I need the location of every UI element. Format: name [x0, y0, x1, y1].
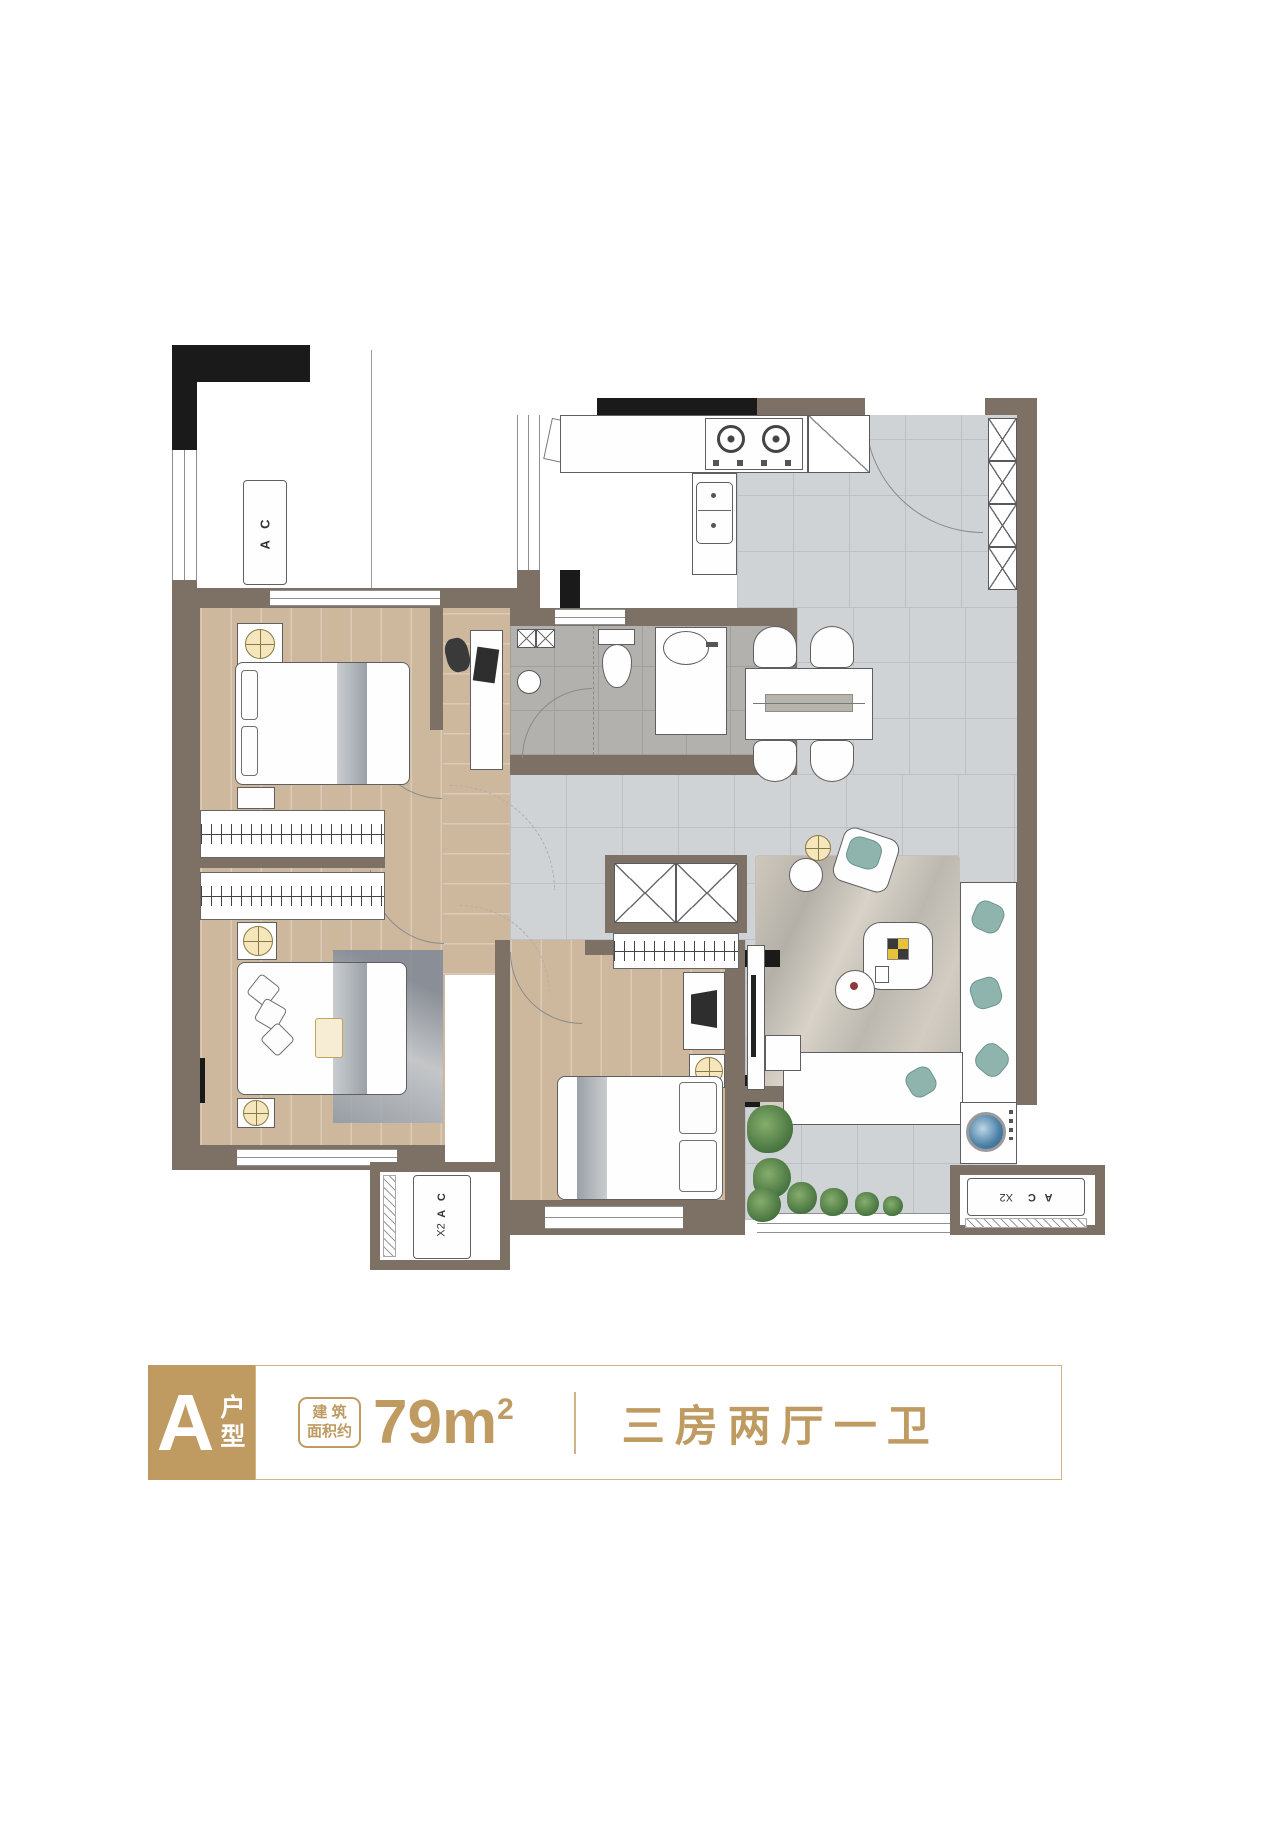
- bedroom1-bed: [235, 662, 410, 785]
- table-runner-line: [753, 703, 865, 704]
- shower-glass-line: [593, 626, 594, 755]
- decor-item: [850, 982, 858, 990]
- bed-blanket-stripe: [337, 663, 367, 784]
- lamp-icon: [243, 1100, 269, 1126]
- pillow: [679, 1140, 717, 1192]
- floor-plan-page: A C: [0, 0, 1280, 1848]
- sink-drain: [711, 493, 716, 498]
- wall: [725, 940, 745, 1235]
- wall: [985, 398, 1037, 415]
- bedroom3-hang-rail: [613, 933, 739, 969]
- washer-drum: [966, 1112, 1006, 1152]
- wall: [510, 608, 797, 626]
- closet-cabinet: [614, 863, 676, 923]
- ac-unit-label: A C: [258, 516, 273, 550]
- toilet-tank: [598, 629, 635, 645]
- ac-label-box: A C X2: [413, 1175, 471, 1259]
- bed-blanket-stripe: [577, 1077, 607, 1199]
- ac-count: X2: [1000, 1191, 1013, 1203]
- lamp-icon: [243, 926, 273, 956]
- wall: [430, 608, 443, 730]
- magazine: [875, 966, 889, 983]
- tv: [751, 975, 756, 1057]
- unit-letter: A: [157, 1383, 215, 1463]
- ac-platform-hatch: [965, 1218, 1087, 1228]
- area-value: 79m: [373, 1388, 497, 1457]
- kitchen-tall-cabinet: [808, 415, 870, 473]
- bedroom1-wardrobe: [200, 810, 385, 858]
- wall: [200, 858, 385, 868]
- bath-cabinet: [517, 629, 536, 648]
- window: [270, 590, 440, 606]
- area-prefix-badge: 建 筑 面积约: [298, 1397, 361, 1449]
- legend-divider: [574, 1392, 576, 1454]
- kitchen-sink: [696, 482, 733, 544]
- area-exponent: 2: [497, 1393, 514, 1426]
- ac-platform-hatch: [383, 1175, 396, 1257]
- entry-shoe-cabinet: [988, 504, 1017, 547]
- entry-shoe-cabinet: [988, 547, 1017, 590]
- ac-unit-box: A C: [243, 480, 287, 585]
- side-table: [835, 970, 875, 1010]
- gold-throw: [315, 1018, 343, 1058]
- floor-plan: A C: [165, 330, 1140, 1275]
- sink-drain: [711, 523, 716, 528]
- wall: [757, 398, 865, 415]
- desk-monitor: [473, 647, 500, 684]
- area-prefix-line1: 建 筑: [307, 1404, 352, 1423]
- wall: [172, 608, 200, 1148]
- lamp-icon: [245, 629, 275, 659]
- dining-chair: [753, 740, 797, 782]
- pillow: [241, 670, 258, 720]
- desk-monitor: [691, 990, 717, 1028]
- sofa-seat-section: [783, 1052, 963, 1125]
- unit-type-badge: A 户型: [148, 1365, 255, 1480]
- burner: [762, 425, 790, 453]
- balcony-window: [757, 1213, 953, 1233]
- window: [517, 415, 540, 570]
- wall: [1017, 415, 1037, 1105]
- wall: [597, 398, 757, 415]
- dining-chair: [753, 626, 797, 668]
- pillow: [679, 1082, 717, 1134]
- unit-suffix: 户型: [220, 1394, 246, 1452]
- side-round-table: [789, 858, 823, 892]
- closet-cabinet: [676, 863, 738, 923]
- basin: [663, 631, 709, 665]
- ac-label: A C: [1025, 1191, 1053, 1203]
- ac-label: A C: [436, 1190, 448, 1218]
- dining-chair: [810, 740, 854, 782]
- master-wardrobe: [200, 872, 385, 920]
- window: [545, 1206, 683, 1229]
- washer-controls: [1009, 1110, 1013, 1140]
- shower-head-icon: [517, 670, 541, 694]
- floor-lamp-icon: [805, 835, 831, 861]
- wall: [185, 345, 310, 382]
- window: [555, 609, 625, 625]
- window: [172, 450, 197, 580]
- wall: [172, 345, 197, 450]
- nightstand: [237, 787, 275, 809]
- area-value-group: 79m2: [373, 1392, 514, 1454]
- ac-count: X2: [436, 1223, 448, 1236]
- tv-bench: [747, 945, 765, 1090]
- layout-text: 三房两厅一卫: [622, 1392, 940, 1454]
- stove-knobs: [713, 460, 797, 466]
- faucet: [706, 642, 718, 647]
- area-prefix-line2: 面积约: [307, 1423, 352, 1442]
- dining-chair: [810, 626, 854, 668]
- bath-cabinet: [536, 629, 555, 648]
- ac-label-box: A C X2: [967, 1178, 1085, 1216]
- entry-shoe-cabinet: [988, 418, 1017, 461]
- game-controller-icon: [887, 938, 909, 960]
- entry-shoe-cabinet: [988, 461, 1017, 504]
- legend-bar: 建 筑 面积约 79m2 三房两厅一卫: [255, 1365, 1062, 1480]
- sofa-side-table: [765, 1035, 801, 1071]
- sink-divider: [698, 510, 731, 511]
- pillow: [241, 726, 258, 776]
- burner: [717, 425, 745, 453]
